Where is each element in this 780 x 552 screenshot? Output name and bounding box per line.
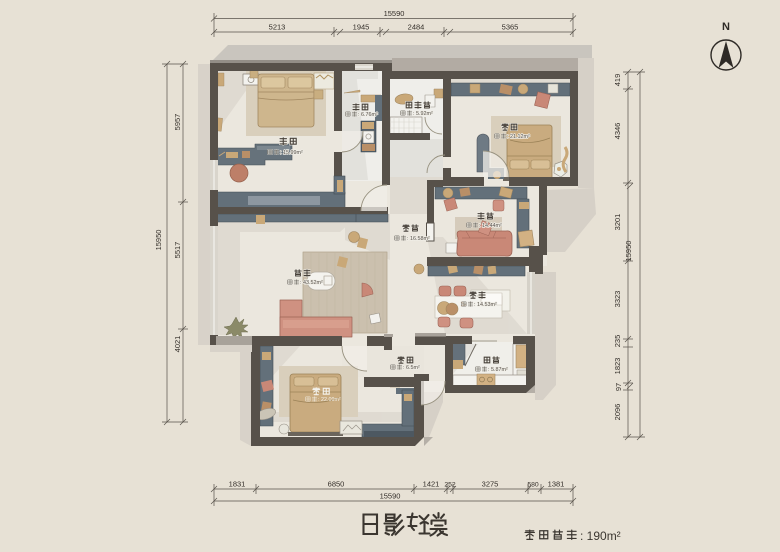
svg-text:252: 252 [444,482,456,489]
svg-text:1831: 1831 [229,480,246,489]
svg-text:97: 97 [614,383,623,391]
svg-text:: 190m²: : 190m² [580,529,621,543]
svg-text:15950: 15950 [624,241,633,262]
svg-text:15590: 15590 [384,9,405,18]
svg-text:3201: 3201 [613,214,622,231]
svg-text:: 21.12m²: : 21.12m² [507,134,530,140]
svg-text:: 5.87m²: : 5.87m² [488,367,508,373]
svg-text:5957: 5957 [173,114,182,131]
svg-text:: 14.44m²: : 14.44m² [479,223,502,229]
svg-text:4021: 4021 [173,336,182,353]
svg-text:2484: 2484 [408,23,425,32]
svg-text:: 43.52m²: : 43.52m² [300,280,323,286]
svg-text:4346: 4346 [613,123,622,140]
svg-text:2096: 2096 [613,404,622,421]
svg-text:3323: 3323 [613,291,622,308]
svg-text:5213: 5213 [269,23,286,32]
svg-text:3275: 3275 [482,480,499,489]
svg-text:580: 580 [527,482,539,489]
svg-text:1945: 1945 [353,23,370,32]
svg-text:15590: 15590 [380,492,401,501]
svg-text:1421: 1421 [423,480,440,489]
svg-text:15950: 15950 [154,230,163,251]
svg-text:: 15.99m²: : 15.99m² [280,150,303,156]
svg-text:1381: 1381 [548,480,565,489]
svg-text:: 22.09m²: : 22.09m² [318,397,341,403]
svg-text:5517: 5517 [173,242,182,259]
svg-text:419: 419 [613,74,622,87]
svg-text:5365: 5365 [502,23,519,32]
svg-text:: 16.58m²: : 16.58m² [407,236,430,242]
svg-text:1823: 1823 [613,358,622,375]
svg-text:235: 235 [613,335,622,348]
svg-text:: 6.76m²: : 6.76m² [358,112,378,118]
svg-text:: 14.53m²: : 14.53m² [474,302,497,308]
svg-text:N: N [722,21,730,33]
svg-text:: 6.5m²: : 6.5m² [403,365,420,371]
svg-text:: 5.92m²: : 5.92m² [413,111,433,117]
svg-text:6850: 6850 [328,480,345,489]
